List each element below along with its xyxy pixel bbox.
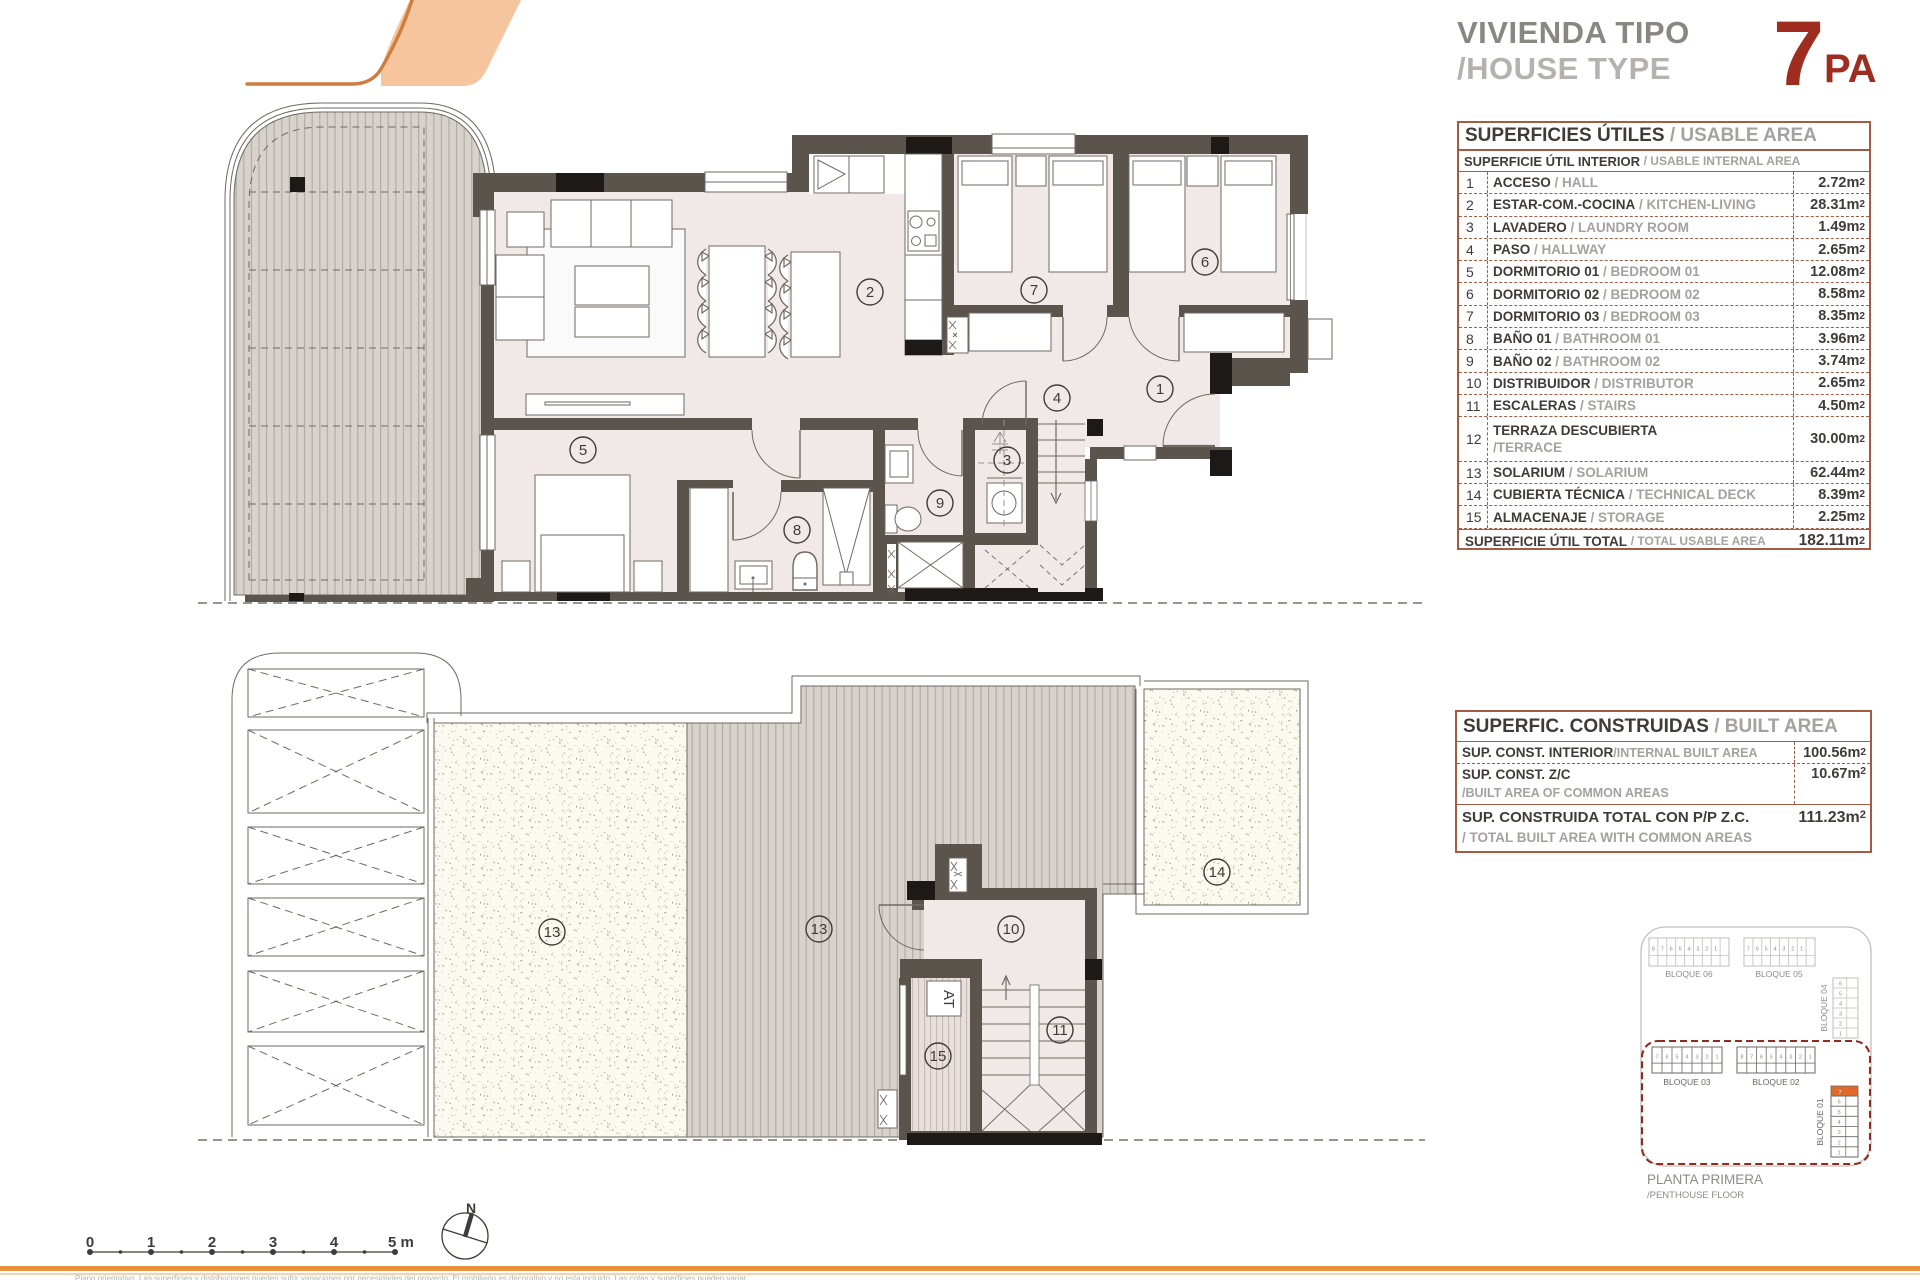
svg-text:BLOQUE 01: BLOQUE 01 (1815, 1098, 1825, 1146)
svg-text:7: 7 (1655, 1055, 1658, 1061)
svg-text:3: 3 (269, 1234, 277, 1251)
svg-text:2: 2 (208, 1234, 216, 1251)
svg-text:6: 6 (1838, 1100, 1841, 1106)
svg-text:4: 4 (1687, 947, 1690, 953)
svg-text:PLANTA PRIMERA: PLANTA PRIMERA (1647, 1172, 1763, 1187)
svg-text:5: 5 (1675, 1055, 1678, 1061)
svg-text:6: 6 (1670, 947, 1673, 953)
svg-text:Plano orientativo. Las superfi: Plano orientativo. Las superficies y dis… (75, 1274, 748, 1280)
svg-text:7: 7 (1747, 947, 1750, 953)
svg-text:11: 11 (1052, 1022, 1068, 1039)
svg-text:4: 4 (1839, 1002, 1842, 1008)
svg-text:3: 3 (1782, 947, 1785, 953)
svg-text:4: 4 (330, 1234, 339, 1251)
svg-text:1: 1 (1800, 947, 1803, 953)
svg-text:2: 2 (1838, 1140, 1841, 1146)
svg-text:2: 2 (1705, 947, 1708, 953)
svg-text:3: 3 (1695, 1055, 1698, 1061)
svg-text:N: N (466, 1200, 476, 1216)
svg-text:13: 13 (544, 924, 561, 941)
svg-text:13: 13 (811, 921, 828, 938)
svg-text:9: 9 (936, 495, 944, 512)
svg-text:6: 6 (1756, 947, 1759, 953)
svg-text:5: 5 (579, 442, 587, 459)
svg-text:2: 2 (1705, 1055, 1708, 1061)
svg-text:2: 2 (1799, 1055, 1802, 1061)
svg-text:1: 1 (1156, 381, 1164, 398)
svg-text:BLOQUE 04: BLOQUE 04 (1819, 984, 1829, 1032)
svg-text:4: 4 (1779, 1055, 1782, 1061)
svg-text:6: 6 (1839, 982, 1842, 988)
svg-text:10: 10 (1003, 921, 1020, 938)
svg-text:14: 14 (1209, 864, 1226, 881)
svg-text:0: 0 (86, 1234, 94, 1251)
svg-text:7: 7 (1750, 1055, 1753, 1061)
svg-text:2: 2 (1791, 947, 1794, 953)
svg-text:1: 1 (1839, 1032, 1842, 1038)
svg-text:8: 8 (1740, 1055, 1743, 1061)
svg-text:4: 4 (1053, 390, 1061, 407)
svg-text:BLOQUE 06: BLOQUE 06 (1665, 969, 1713, 979)
svg-text:7: 7 (1838, 1090, 1841, 1096)
svg-text:3: 3 (1789, 1055, 1792, 1061)
svg-text:5: 5 (1770, 1055, 1773, 1061)
svg-text:/PENTHOUSE FLOOR: /PENTHOUSE FLOOR (1647, 1190, 1744, 1201)
svg-text:15: 15 (930, 1048, 947, 1065)
svg-text:4: 4 (1774, 947, 1777, 953)
svg-text:7: 7 (1030, 282, 1038, 299)
svg-text:6: 6 (1201, 254, 1209, 271)
svg-text:5 m: 5 m (388, 1234, 414, 1251)
svg-text:1: 1 (1838, 1151, 1841, 1157)
svg-text:5: 5 (1839, 992, 1842, 998)
svg-text:8: 8 (793, 522, 801, 539)
svg-text:8: 8 (1652, 947, 1655, 953)
svg-text:5: 5 (1838, 1110, 1841, 1116)
svg-text:1: 1 (1715, 1055, 1718, 1061)
svg-text:BLOQUE 05: BLOQUE 05 (1755, 969, 1803, 979)
svg-text:2: 2 (1839, 1022, 1842, 1028)
svg-text:3: 3 (1839, 1012, 1842, 1018)
svg-text:1: 1 (147, 1234, 155, 1251)
svg-text:7: 7 (1661, 947, 1664, 953)
svg-text:1: 1 (1809, 1055, 1812, 1061)
svg-text:3: 3 (1838, 1130, 1841, 1136)
svg-text:AT: AT (940, 990, 957, 1008)
svg-text:2: 2 (866, 284, 874, 301)
svg-text:3: 3 (1003, 452, 1011, 469)
svg-text:1: 1 (1714, 947, 1717, 953)
svg-text:5: 5 (1679, 947, 1682, 953)
svg-text:6: 6 (1760, 1055, 1763, 1061)
svg-text:4: 4 (1838, 1120, 1841, 1126)
svg-text:5: 5 (1765, 947, 1768, 953)
svg-text:BLOQUE 03: BLOQUE 03 (1663, 1077, 1711, 1087)
svg-text:3: 3 (1696, 947, 1699, 953)
svg-text:BLOQUE 02: BLOQUE 02 (1752, 1077, 1800, 1087)
svg-text:6: 6 (1665, 1055, 1668, 1061)
svg-text:4: 4 (1685, 1055, 1688, 1061)
